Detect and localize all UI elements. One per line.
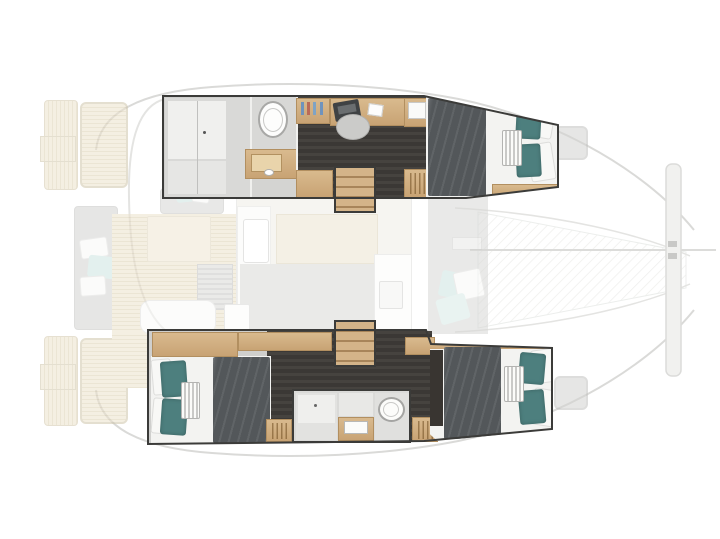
starboard-boarding-ladder	[40, 364, 76, 390]
stbd-sink-basin	[344, 421, 368, 434]
deck-faded-layer	[0, 0, 720, 539]
port-companionway-steps	[334, 166, 376, 213]
port-transom-steps	[80, 102, 128, 188]
galley-appliance	[224, 304, 250, 334]
stbd-shower-floor	[298, 395, 335, 423]
stbd-fwd-berth	[430, 344, 552, 441]
galley-sink	[243, 219, 269, 263]
port-berth-bolster	[502, 130, 522, 166]
starboard-deck-hatch	[554, 376, 588, 410]
stbd-companionway-steps	[334, 320, 376, 367]
stbd-aft-blanket	[213, 357, 270, 443]
stbd-aft-bolster	[181, 382, 200, 419]
catamaran-floorplan	[0, 0, 720, 539]
foredeck-fitting	[452, 237, 482, 250]
desk-chair	[336, 114, 370, 140]
stbd-toilet-seat	[383, 402, 399, 417]
port-vanity-basin	[264, 169, 274, 176]
cockpit-teak-deck-aft	[112, 332, 148, 388]
bottle-red	[307, 102, 310, 115]
stbd-shelf-aft-marks	[269, 423, 289, 439]
stbd-fwd-blanket	[444, 347, 501, 439]
port-berth-blanket	[428, 98, 486, 196]
stbd-bathroom-floor	[339, 393, 373, 416]
stbd-fwd-bolster	[504, 366, 524, 402]
port-nightstand-item	[408, 102, 426, 119]
port-shower-glass-divider	[197, 101, 198, 194]
side-settee	[140, 300, 216, 334]
stbd-wardrobe-mid	[238, 332, 332, 351]
port-boarding-ladder	[40, 136, 76, 162]
port-shower-drain	[203, 131, 206, 134]
port-toilet-seat	[263, 108, 283, 132]
bottle-blue-3	[320, 102, 323, 115]
stbd-fwd-wardrobe	[430, 350, 443, 426]
chart-cabinet-hatch	[379, 281, 403, 309]
port-deck-hatch	[554, 126, 588, 160]
bottle-blue-2	[313, 102, 316, 115]
desk-book	[367, 103, 384, 117]
stbd-wardrobe-aft	[152, 332, 238, 357]
port-aft-counter	[296, 170, 333, 198]
stbd-shower-drain	[314, 404, 317, 407]
aft-bench-pillow-white-2	[79, 275, 106, 297]
salon-table	[276, 214, 378, 264]
cockpit-table	[147, 216, 211, 262]
bottle-blue-1	[301, 102, 304, 115]
